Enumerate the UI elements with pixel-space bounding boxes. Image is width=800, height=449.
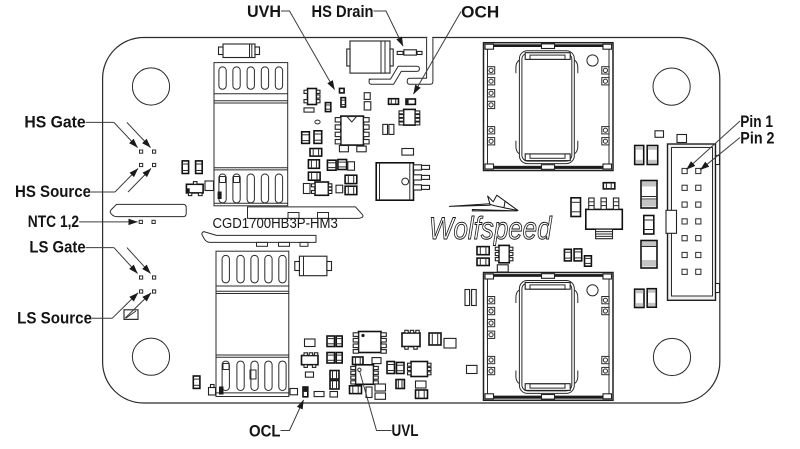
- svg-text:HS Drain: HS Drain: [312, 3, 374, 21]
- svg-text:HS Source: HS Source: [15, 183, 91, 201]
- svg-text:OCL: OCL: [249, 422, 281, 440]
- svg-text:HS Gate: HS Gate: [24, 113, 85, 131]
- svg-text:NTC 1,2: NTC 1,2: [28, 213, 79, 231]
- svg-text:UVL: UVL: [392, 422, 419, 440]
- svg-text:UVH: UVH: [247, 3, 281, 21]
- svg-text:LS Gate: LS Gate: [29, 238, 85, 256]
- svg-text:LS Source: LS Source: [17, 309, 92, 327]
- svg-text:Pin 2: Pin 2: [740, 130, 774, 148]
- svg-text:Pin 1: Pin 1: [740, 113, 773, 131]
- svg-text:CGD1700HB3P-HM3: CGD1700HB3P-HM3: [213, 216, 338, 232]
- svg-text:OCH: OCH: [461, 4, 499, 22]
- svg-text:Wolfspeed: Wolfspeed: [429, 210, 553, 246]
